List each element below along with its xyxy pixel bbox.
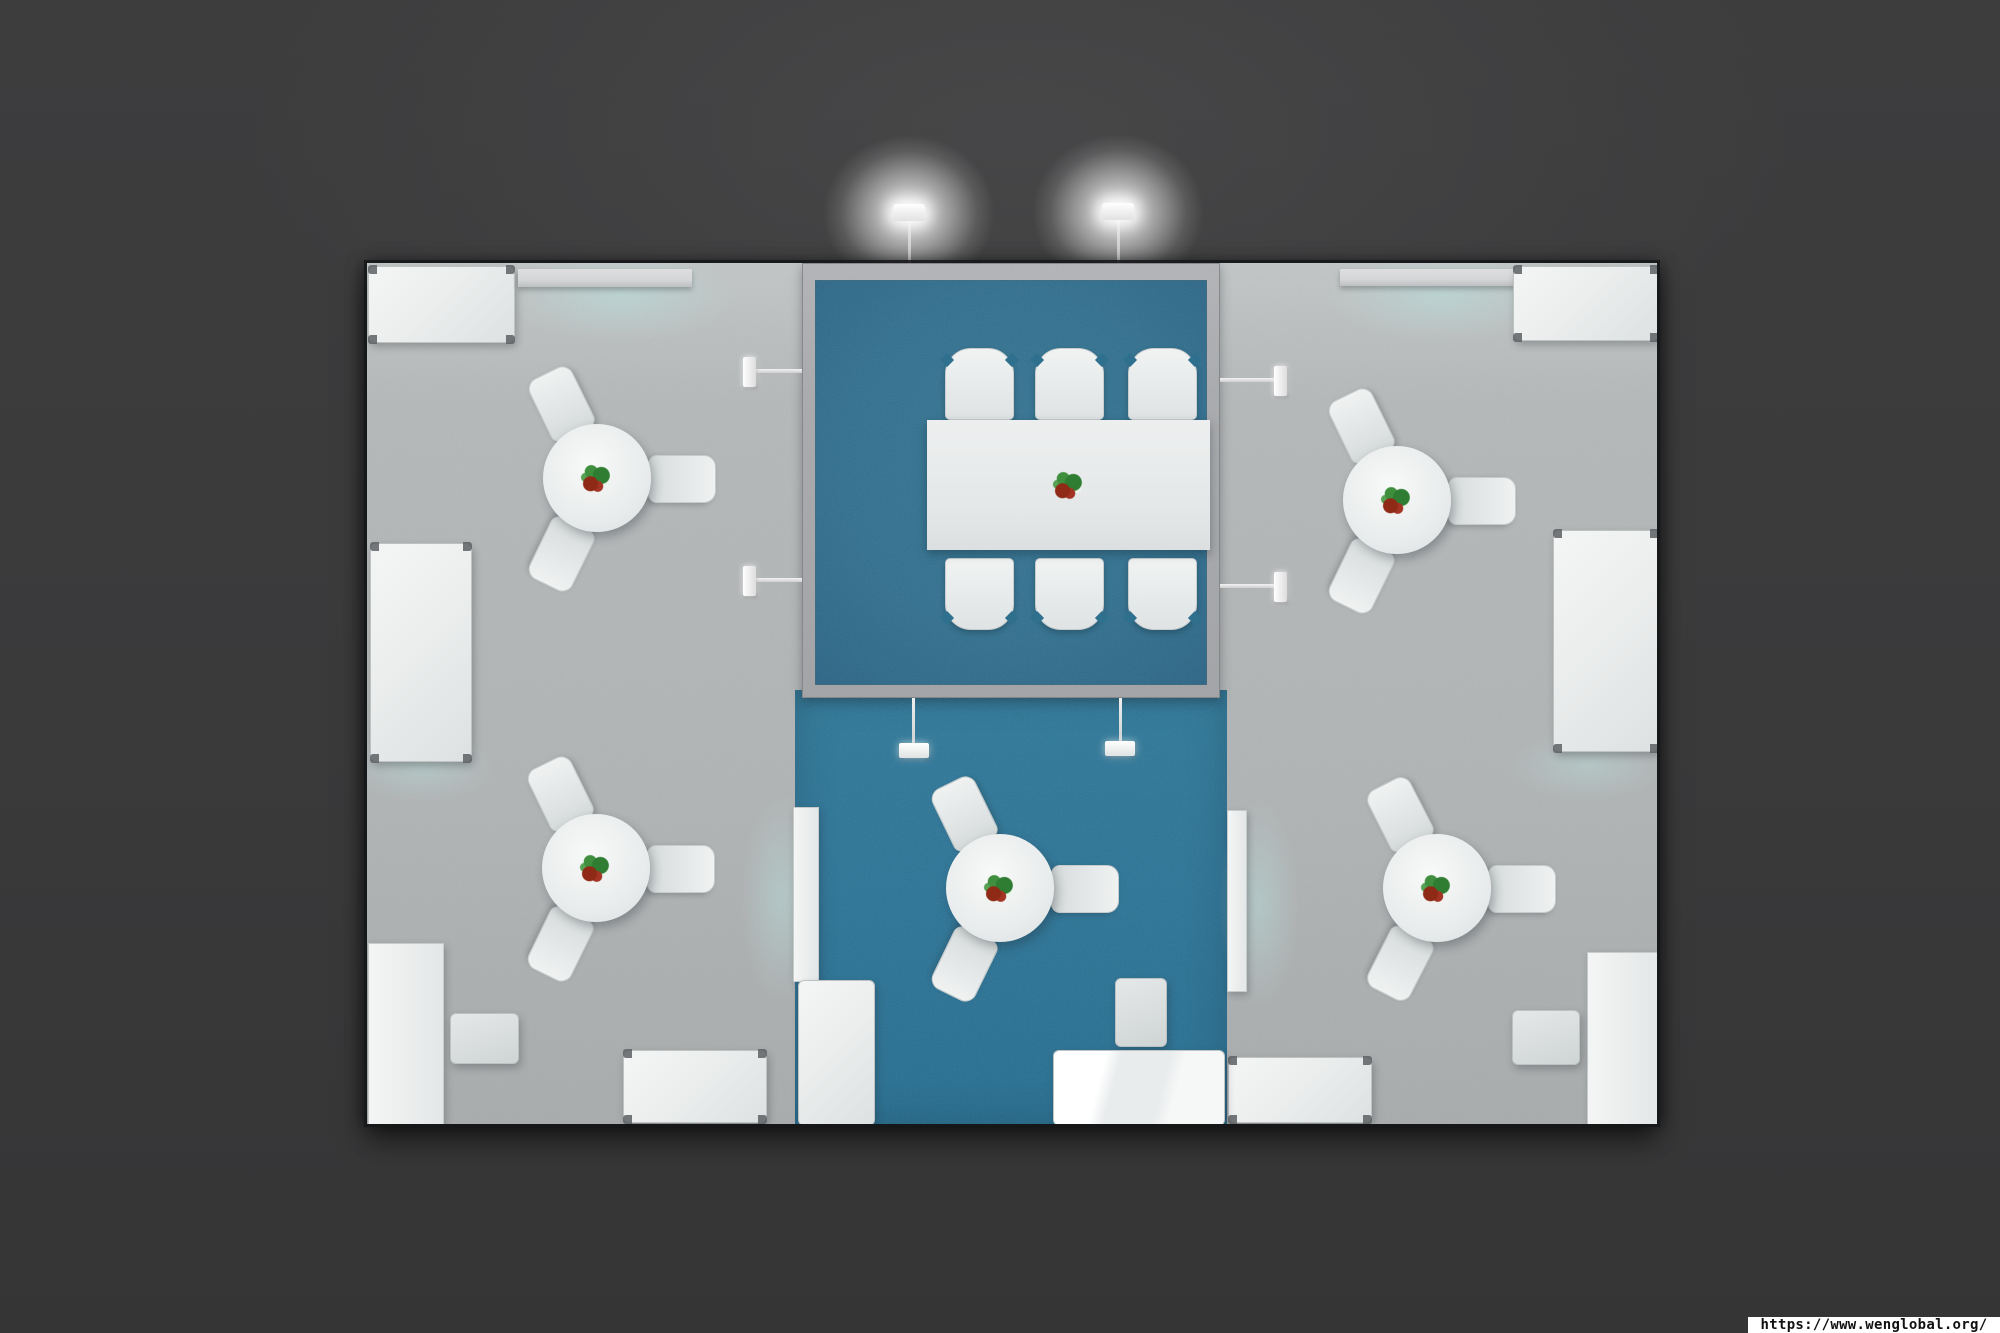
cabinet-lounge-left bbox=[798, 980, 875, 1124]
cabinet-top-right bbox=[1513, 266, 1657, 341]
conference-chair bbox=[1035, 558, 1104, 630]
booth-top-view-scene: https://www.wenglobal.org/ bbox=[0, 0, 2000, 1333]
divider-panel-left bbox=[793, 807, 819, 982]
conference-chair bbox=[945, 558, 1014, 630]
panel-bottom-left bbox=[368, 943, 444, 1124]
booth-floor bbox=[367, 263, 1657, 1124]
flower-centerpiece bbox=[1379, 484, 1415, 516]
ceiling-lamp-stem bbox=[1117, 219, 1120, 269]
wall-light-icon bbox=[743, 357, 756, 387]
wall-shelf-right bbox=[1340, 269, 1518, 286]
conference-chair bbox=[945, 348, 1014, 420]
wall-light-icon bbox=[1274, 366, 1287, 396]
watermark-url-bar: https://www.wenglobal.org/ bbox=[1748, 1317, 2000, 1333]
small-cabinet-bottom-right bbox=[1512, 1010, 1580, 1065]
cabinet-top-left bbox=[368, 266, 515, 343]
reception-counter bbox=[1053, 1050, 1225, 1124]
round-table bbox=[543, 424, 651, 532]
conference-chair bbox=[1035, 348, 1104, 420]
wall-light-arm bbox=[756, 578, 802, 582]
wall-shelf-left bbox=[518, 269, 692, 287]
flower-centerpiece bbox=[1419, 872, 1455, 904]
tall-cabinet-left bbox=[370, 543, 472, 762]
round-table bbox=[1383, 834, 1491, 942]
small-cabinet-bottom-left bbox=[450, 1013, 519, 1064]
conference-table bbox=[927, 420, 1210, 550]
flower-centerpiece bbox=[579, 462, 615, 494]
pendant-lamp bbox=[1105, 741, 1135, 756]
chair bbox=[648, 455, 716, 503]
flower-centerpiece bbox=[578, 852, 614, 884]
divider-panel-right bbox=[1227, 810, 1247, 992]
wall-light-arm bbox=[1220, 378, 1274, 382]
conference-chair bbox=[1128, 348, 1197, 420]
pendant-lamp-stem bbox=[1119, 698, 1122, 744]
pendant-lamp bbox=[899, 743, 929, 758]
ceiling-lamp-left bbox=[893, 204, 925, 221]
chair bbox=[647, 845, 715, 893]
round-table bbox=[1343, 446, 1451, 554]
chair bbox=[1448, 477, 1516, 525]
flower-centerpiece bbox=[1051, 469, 1087, 501]
round-table bbox=[946, 834, 1054, 942]
flower-centerpiece bbox=[982, 872, 1018, 904]
wall-light-arm bbox=[756, 369, 802, 373]
wall-light-arm bbox=[1220, 584, 1274, 588]
tall-cabinet-right bbox=[1553, 530, 1657, 752]
conference-chair bbox=[1128, 558, 1197, 630]
cabinet-right-edge bbox=[1587, 952, 1657, 1124]
chair bbox=[1051, 865, 1119, 913]
watermark-url-text: https://www.wenglobal.org/ bbox=[1761, 1317, 1988, 1333]
pendant-lamp-stem bbox=[912, 698, 915, 746]
small-cabinet-lounge bbox=[1115, 978, 1167, 1047]
wall-light-icon bbox=[743, 566, 756, 596]
wall-light-icon bbox=[1274, 572, 1287, 602]
cabinet-bottom-right bbox=[1228, 1057, 1372, 1123]
cabinet-bottom-left bbox=[623, 1050, 767, 1123]
round-table bbox=[542, 814, 650, 922]
ceiling-lamp-right bbox=[1102, 203, 1134, 220]
chair bbox=[1488, 865, 1556, 913]
